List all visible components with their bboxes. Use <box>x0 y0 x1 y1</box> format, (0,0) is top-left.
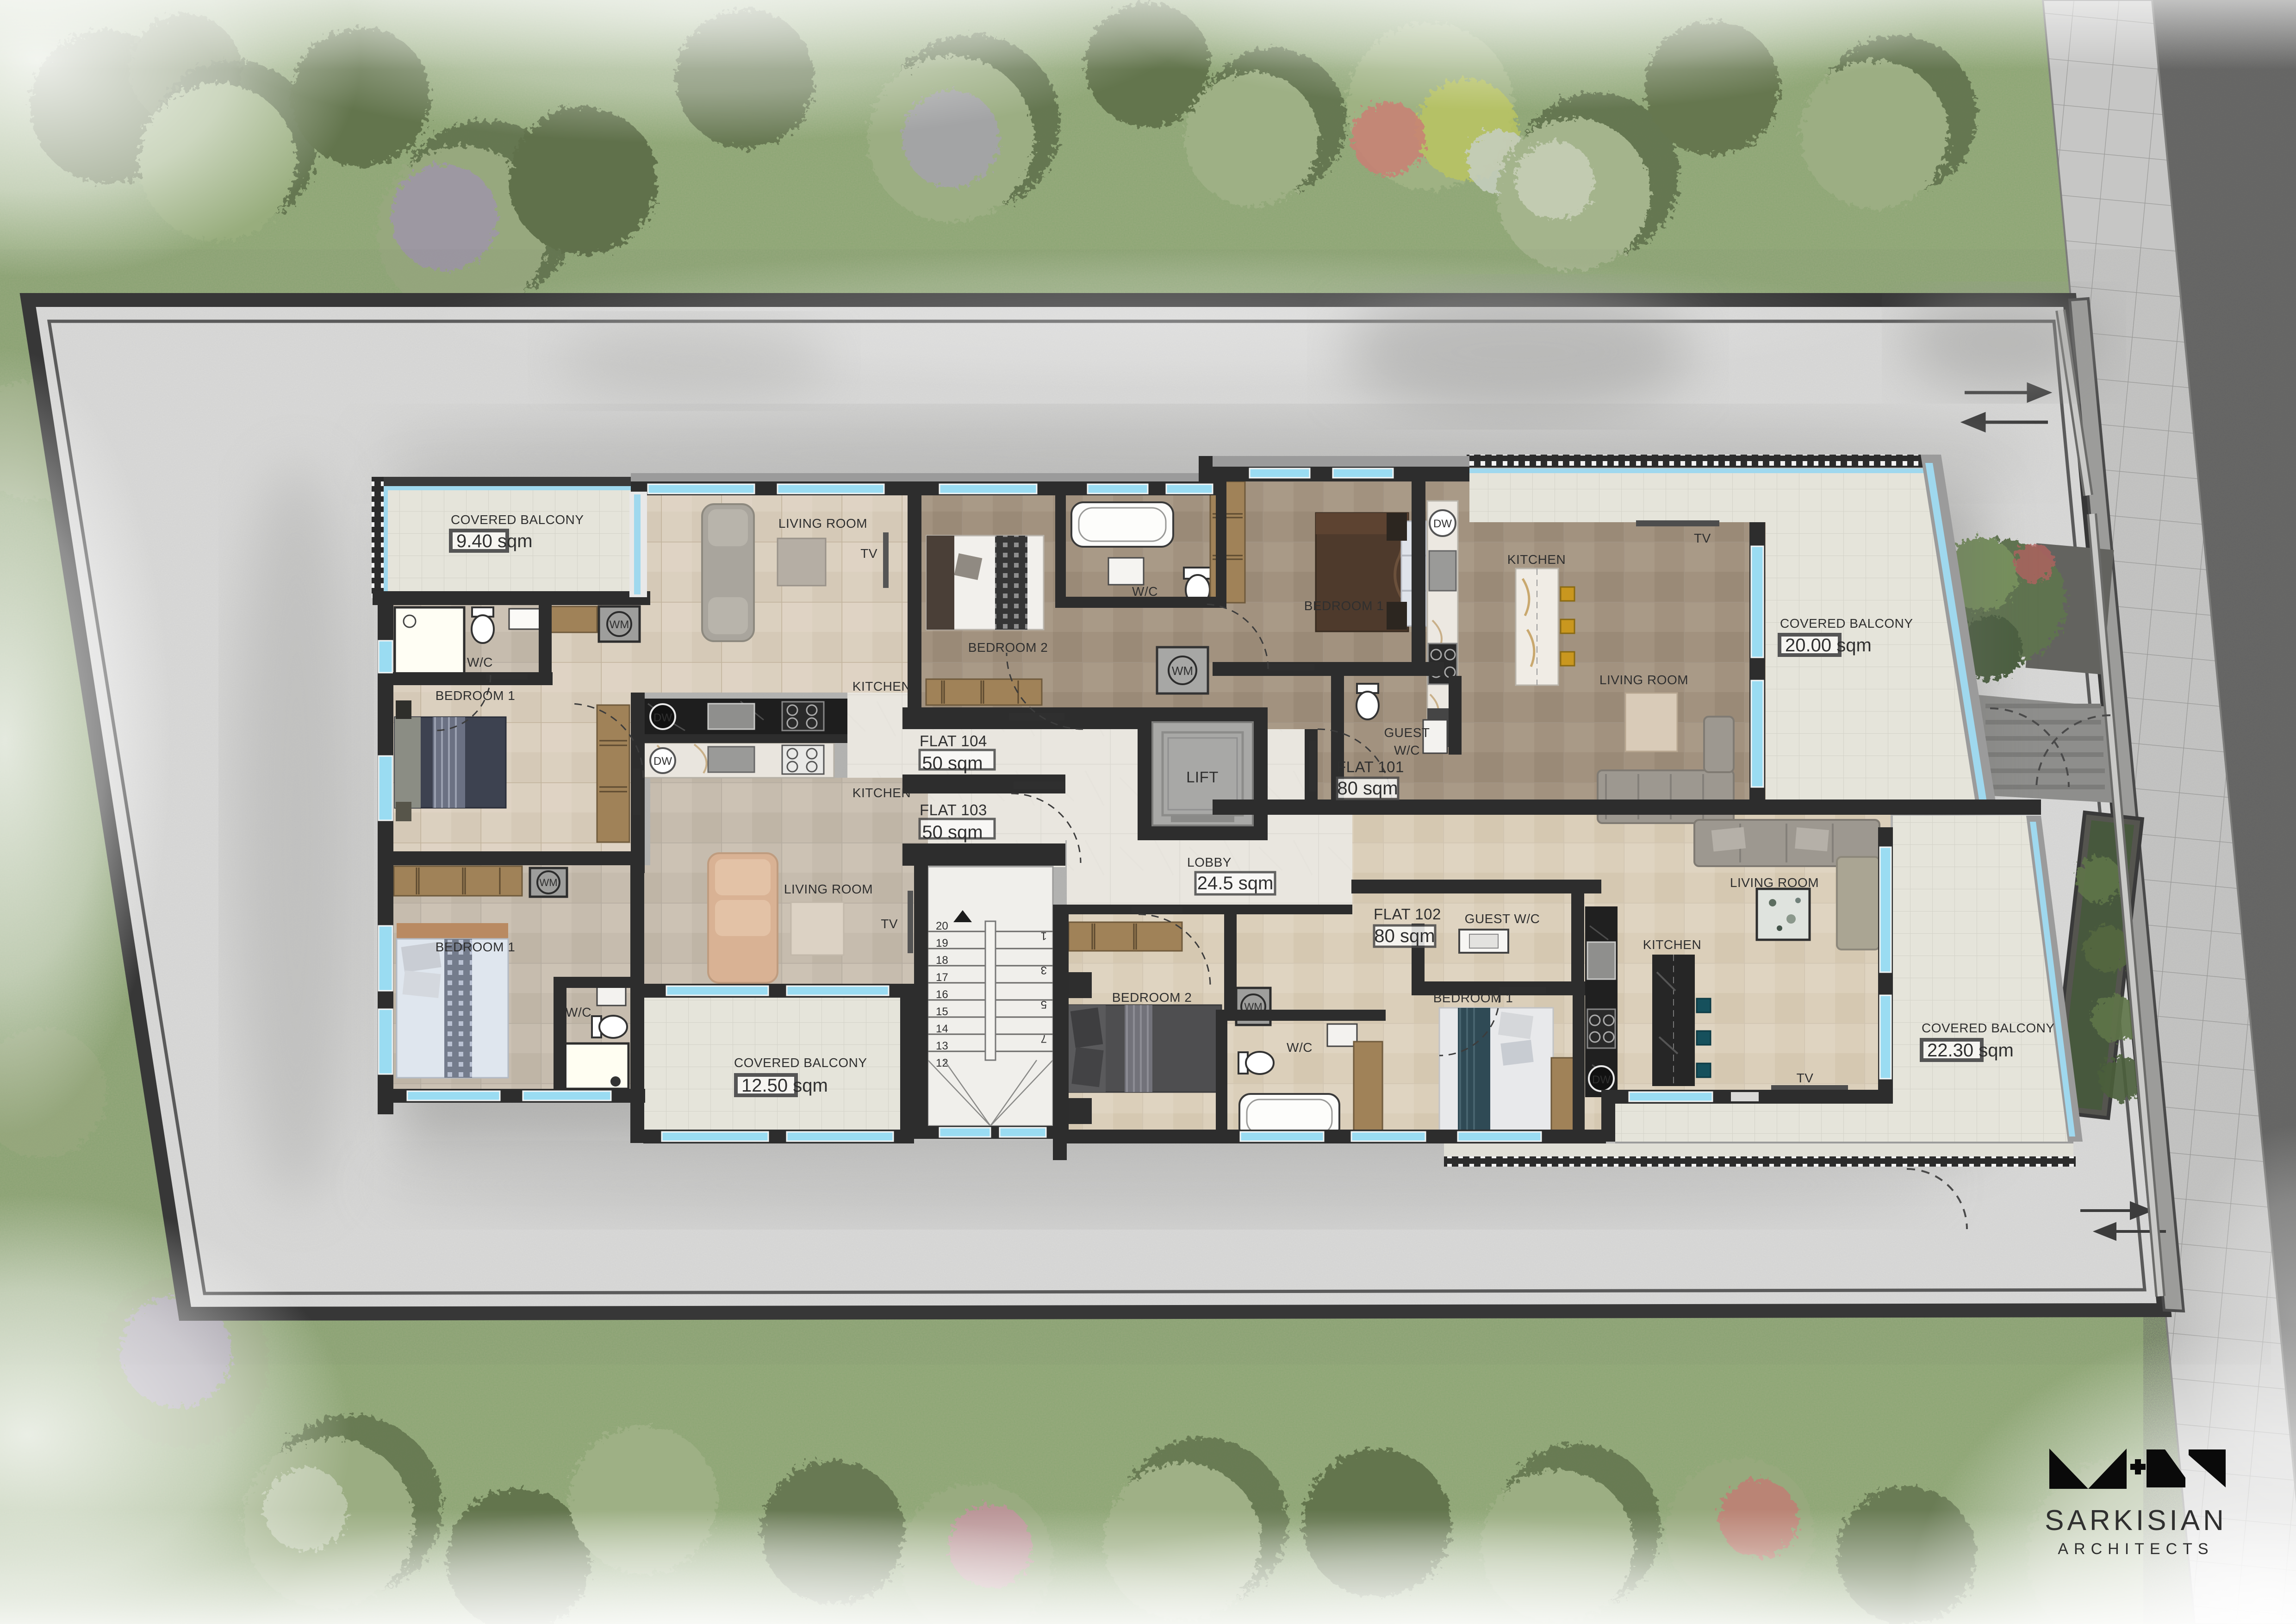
svg-text:TV: TV <box>1694 531 1711 545</box>
svg-text:24.5 sqm: 24.5 sqm <box>1197 873 1274 893</box>
svg-text:80 sqm: 80 sqm <box>1374 926 1435 946</box>
svg-text:7: 7 <box>1041 1032 1047 1045</box>
svg-text:15: 15 <box>936 1006 948 1018</box>
svg-text:BEDROOM 2: BEDROOM 2 <box>968 640 1048 655</box>
svg-text:FLAT 102: FLAT 102 <box>1374 906 1441 923</box>
svg-text:22.30 sqm: 22.30 sqm <box>1927 1040 2014 1061</box>
svg-text:GUEST: GUEST <box>1384 725 1430 740</box>
svg-text:COVERED BALCONY: COVERED BALCONY <box>734 1056 867 1070</box>
svg-text:BEDROOM 2: BEDROOM 2 <box>1112 990 1192 1005</box>
svg-text:LIVING ROOM: LIVING ROOM <box>778 516 867 531</box>
svg-text:KITCHEN: KITCHEN <box>1507 552 1566 567</box>
svg-text:1: 1 <box>1041 930 1047 942</box>
svg-text:16: 16 <box>936 988 948 1001</box>
svg-text:LIVING ROOM: LIVING ROOM <box>784 882 873 896</box>
svg-text:LIVING ROOM: LIVING ROOM <box>1730 875 1819 890</box>
svg-text:17: 17 <box>936 971 948 984</box>
svg-text:13: 13 <box>936 1040 948 1052</box>
svg-text:SARKISIAN: SARKISIAN <box>2045 1505 2227 1537</box>
svg-text:W/C: W/C <box>1394 743 1420 757</box>
svg-text:FLAT 104: FLAT 104 <box>920 732 987 750</box>
svg-text:20: 20 <box>936 920 948 932</box>
svg-text:LIVING ROOM: LIVING ROOM <box>1599 673 1688 687</box>
svg-text:DW: DW <box>1433 518 1452 530</box>
svg-text:20.00 sqm: 20.00 sqm <box>1785 635 1872 656</box>
svg-text:ARCHITECTS: ARCHITECTS <box>2058 1540 2214 1558</box>
svg-text:50 sqm: 50 sqm <box>922 822 983 843</box>
svg-text:BEDROOM 1: BEDROOM 1 <box>436 940 516 954</box>
svg-text:GUEST W/C: GUEST W/C <box>1465 912 1540 926</box>
svg-text:BEDROOM 1: BEDROOM 1 <box>1433 991 1513 1005</box>
svg-text:DW: DW <box>1592 1074 1611 1086</box>
svg-text:50 sqm: 50 sqm <box>922 753 983 774</box>
svg-text:DW: DW <box>653 755 672 768</box>
svg-text:BEDROOM 1: BEDROOM 1 <box>436 688 516 703</box>
svg-text:COVERED BALCONY: COVERED BALCONY <box>1922 1021 2055 1035</box>
svg-text:KITCHEN: KITCHEN <box>852 679 911 693</box>
svg-text:14: 14 <box>936 1023 948 1035</box>
svg-text:12.50 sqm: 12.50 sqm <box>741 1075 828 1096</box>
svg-text:COVERED BALCONY: COVERED BALCONY <box>1780 616 1913 631</box>
svg-text:COVERED BALCONY: COVERED BALCONY <box>451 512 584 527</box>
svg-text:5: 5 <box>1041 998 1047 1011</box>
svg-text:W/C: W/C <box>1287 1040 1313 1055</box>
svg-text:W/C: W/C <box>467 655 493 669</box>
svg-text:TV: TV <box>881 917 898 931</box>
svg-text:9.40 sqm: 9.40 sqm <box>456 531 533 551</box>
svg-text:TV: TV <box>1797 1071 1814 1085</box>
svg-text:80 sqm: 80 sqm <box>1337 778 1398 799</box>
svg-text:18: 18 <box>936 954 948 967</box>
svg-text:KITCHEN: KITCHEN <box>852 786 911 800</box>
svg-text:BEDROOM 1: BEDROOM 1 <box>1304 599 1384 613</box>
svg-text:LIFT: LIFT <box>1186 768 1219 786</box>
svg-text:19: 19 <box>936 937 948 949</box>
svg-text:DW: DW <box>653 712 672 724</box>
svg-text:LOBBY: LOBBY <box>1187 855 1232 869</box>
svg-text:WM: WM <box>539 877 557 888</box>
svg-text:WM: WM <box>610 618 629 631</box>
svg-text:W/C: W/C <box>566 1005 591 1019</box>
svg-text:3: 3 <box>1041 964 1047 976</box>
svg-text:FLAT 103: FLAT 103 <box>920 801 987 818</box>
svg-text:TV: TV <box>860 546 877 561</box>
svg-text:WM: WM <box>1172 664 1193 678</box>
svg-text:W/C: W/C <box>1132 584 1158 599</box>
svg-text:FLAT 101: FLAT 101 <box>1337 758 1404 775</box>
svg-text:12: 12 <box>936 1057 948 1069</box>
svg-text:KITCHEN: KITCHEN <box>1643 937 1701 952</box>
